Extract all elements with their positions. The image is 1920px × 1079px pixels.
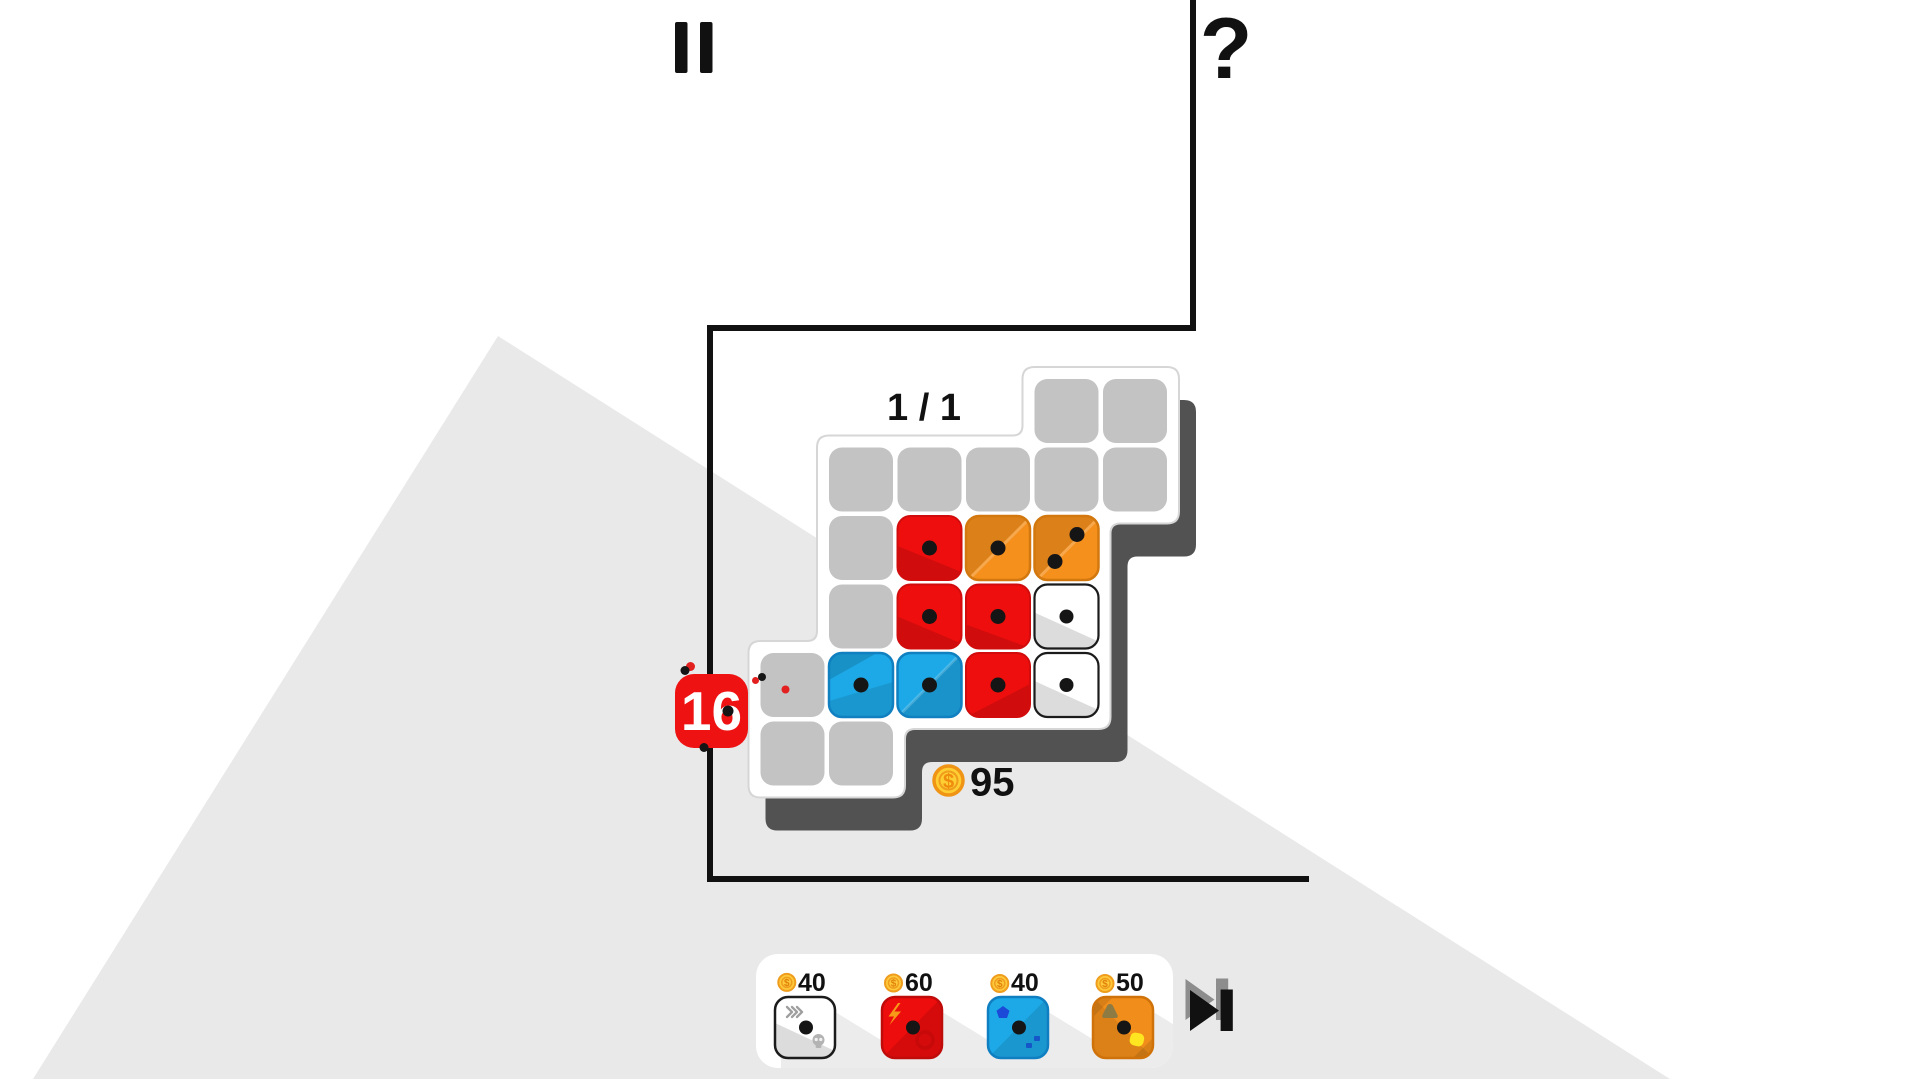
svg-text:$: $ <box>997 979 1003 990</box>
svg-text:$: $ <box>784 978 790 989</box>
svg-text:$: $ <box>891 979 897 990</box>
svg-text:1 / 1: 1 / 1 <box>887 387 961 429</box>
svg-text:40: 40 <box>1011 969 1039 997</box>
svg-text:40: 40 <box>798 969 826 997</box>
svg-text:$: $ <box>1102 979 1108 990</box>
svg-text:$: $ <box>943 771 954 793</box>
svg-text:60: 60 <box>905 969 933 997</box>
svg-text:95: 95 <box>970 761 1015 805</box>
svg-text:50: 50 <box>1116 969 1144 997</box>
svg-text:?: ? <box>1200 1 1253 97</box>
